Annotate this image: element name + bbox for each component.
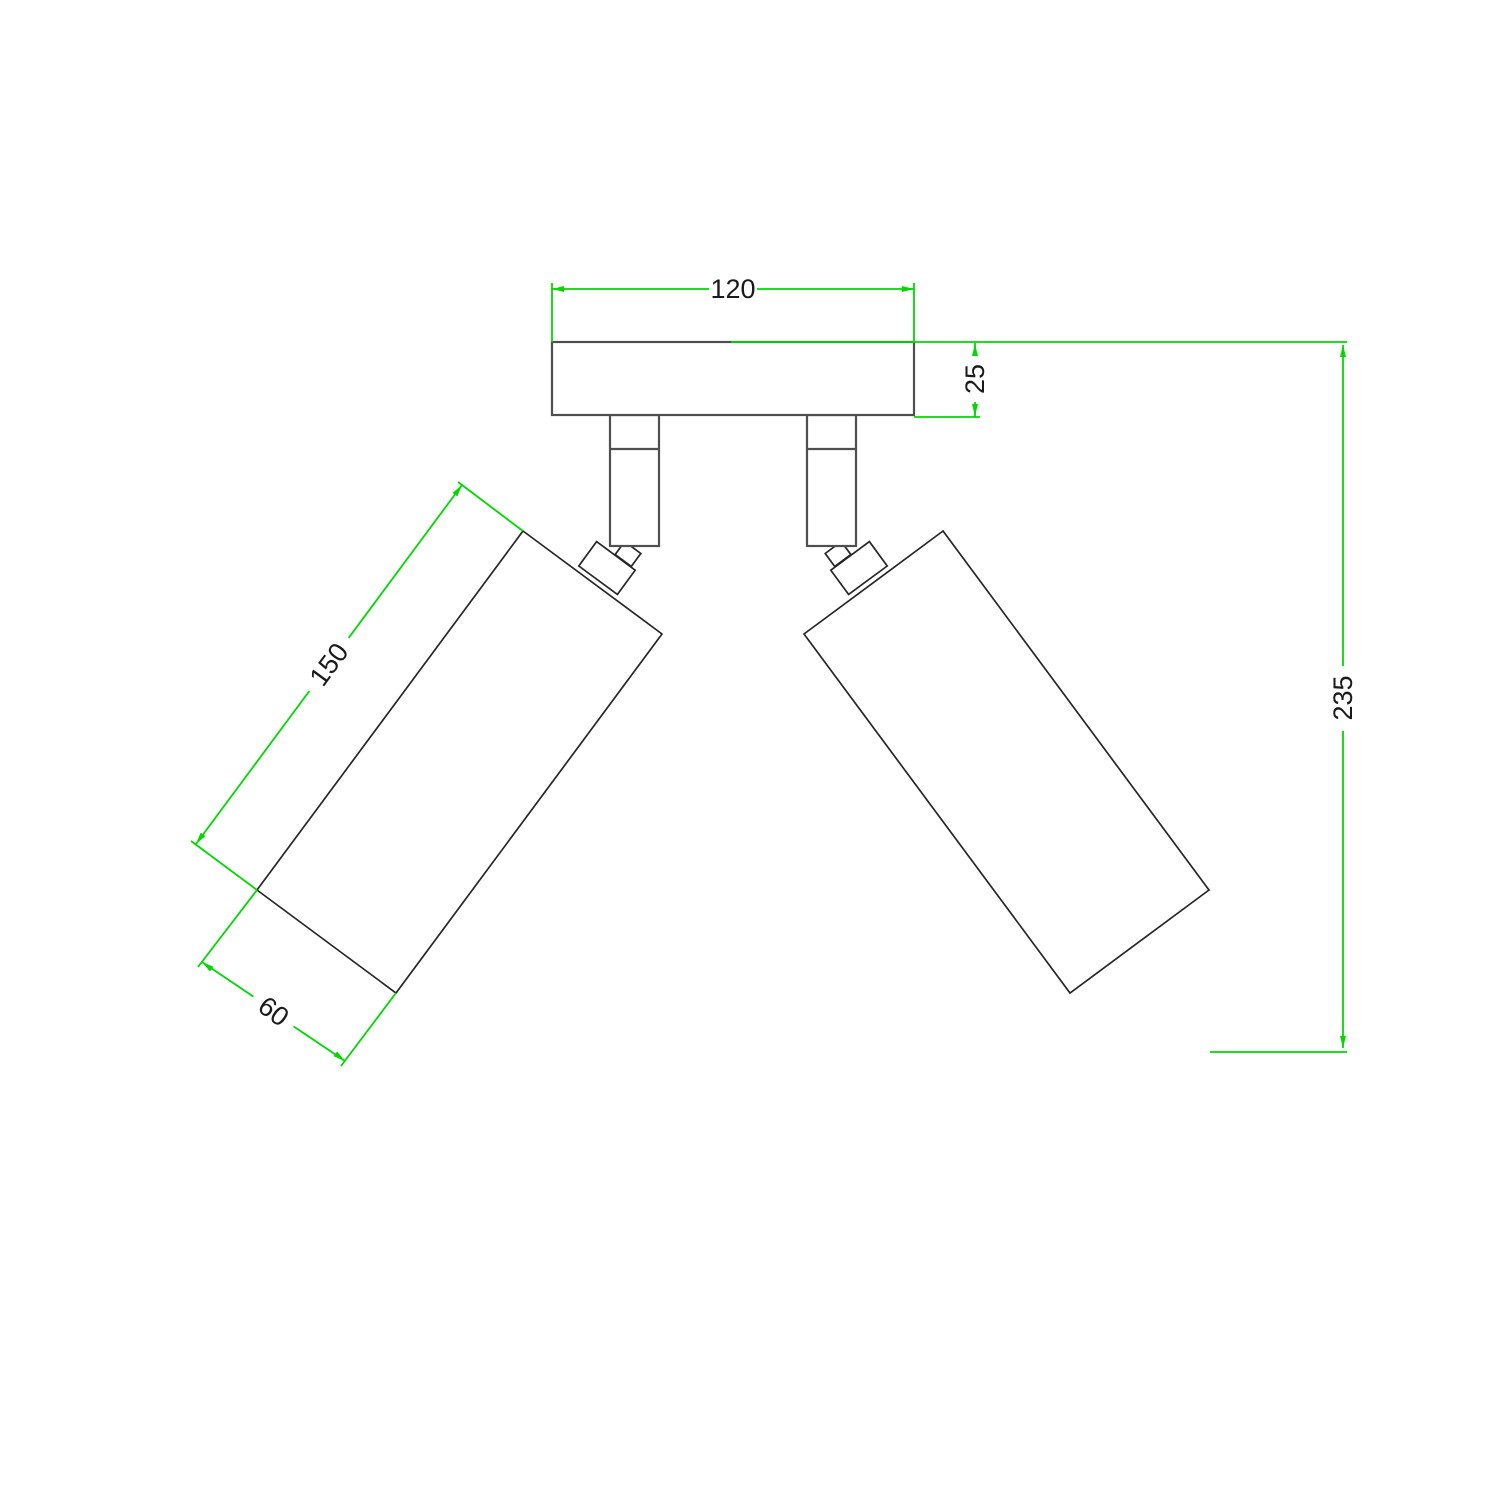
dim-plate-thickness-label: 25 [960,364,990,394]
technical-drawing-canvas: 1202523515060 [0,0,1500,1500]
right-stem [807,415,856,546]
left-stem [610,415,659,546]
dim-overall-height-label: 235 [1328,675,1358,720]
drawing-background [0,0,1500,1500]
dim-plate-width-label: 120 [710,274,755,304]
mounting-plate [552,342,914,415]
lamp-dimension-drawing: 1202523515060 [0,0,1500,1500]
